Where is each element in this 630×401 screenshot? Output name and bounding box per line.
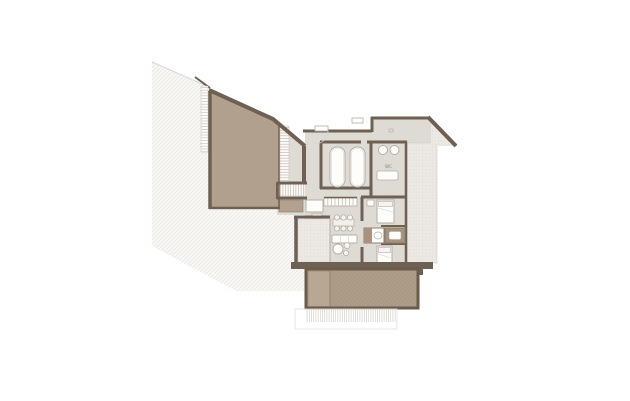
pouf-2 — [343, 250, 348, 255]
nightstand-bedroom1 — [367, 200, 374, 206]
bathtub-left — [330, 147, 345, 187]
dining-chair-4 — [334, 226, 339, 231]
upper-terrace-deck — [211, 92, 279, 208]
floor-plan-drawing: WC — [0, 0, 630, 401]
kitchen-block — [279, 200, 303, 212]
sink-right — [390, 146, 399, 155]
toilet — [377, 171, 398, 180]
patio-terrace-left — [298, 219, 330, 262]
interior-stair-upper-base — [280, 126, 289, 183]
stair-side-wall — [302, 146, 306, 183]
kitchen-island — [306, 200, 323, 212]
wc-label: WC — [385, 164, 392, 169]
bathtub-right — [350, 147, 365, 187]
pouf-1 — [344, 243, 350, 249]
pillow-bedroom2 — [379, 248, 391, 253]
dining-chair-5 — [341, 226, 346, 231]
pergola-slats — [307, 309, 395, 322]
floor-plan-page: WC — [0, 0, 630, 401]
site-area-lower-left — [152, 210, 306, 291]
site-area-upper-left — [152, 62, 209, 210]
vanity-cabinet — [364, 228, 372, 243]
pillow-bedroom1 — [379, 202, 393, 207]
dining-chair-3 — [347, 215, 352, 220]
dining-chair-2 — [341, 215, 346, 220]
coffee-table — [333, 244, 343, 254]
dining-chair-1 — [334, 215, 339, 220]
sofa — [332, 235, 357, 243]
kitchen-counter — [324, 198, 357, 206]
sink-left — [379, 146, 388, 155]
vanity-sink — [374, 232, 382, 239]
plan-layer: WC — [152, 62, 456, 329]
door-leaf-top — [352, 118, 363, 123]
dining-chair-6 — [347, 226, 352, 231]
tiled-terrace-right — [407, 143, 437, 263]
pool-terrace-strip — [309, 272, 330, 306]
door-leaf-hall — [315, 126, 328, 131]
shower-tray — [389, 232, 401, 240]
